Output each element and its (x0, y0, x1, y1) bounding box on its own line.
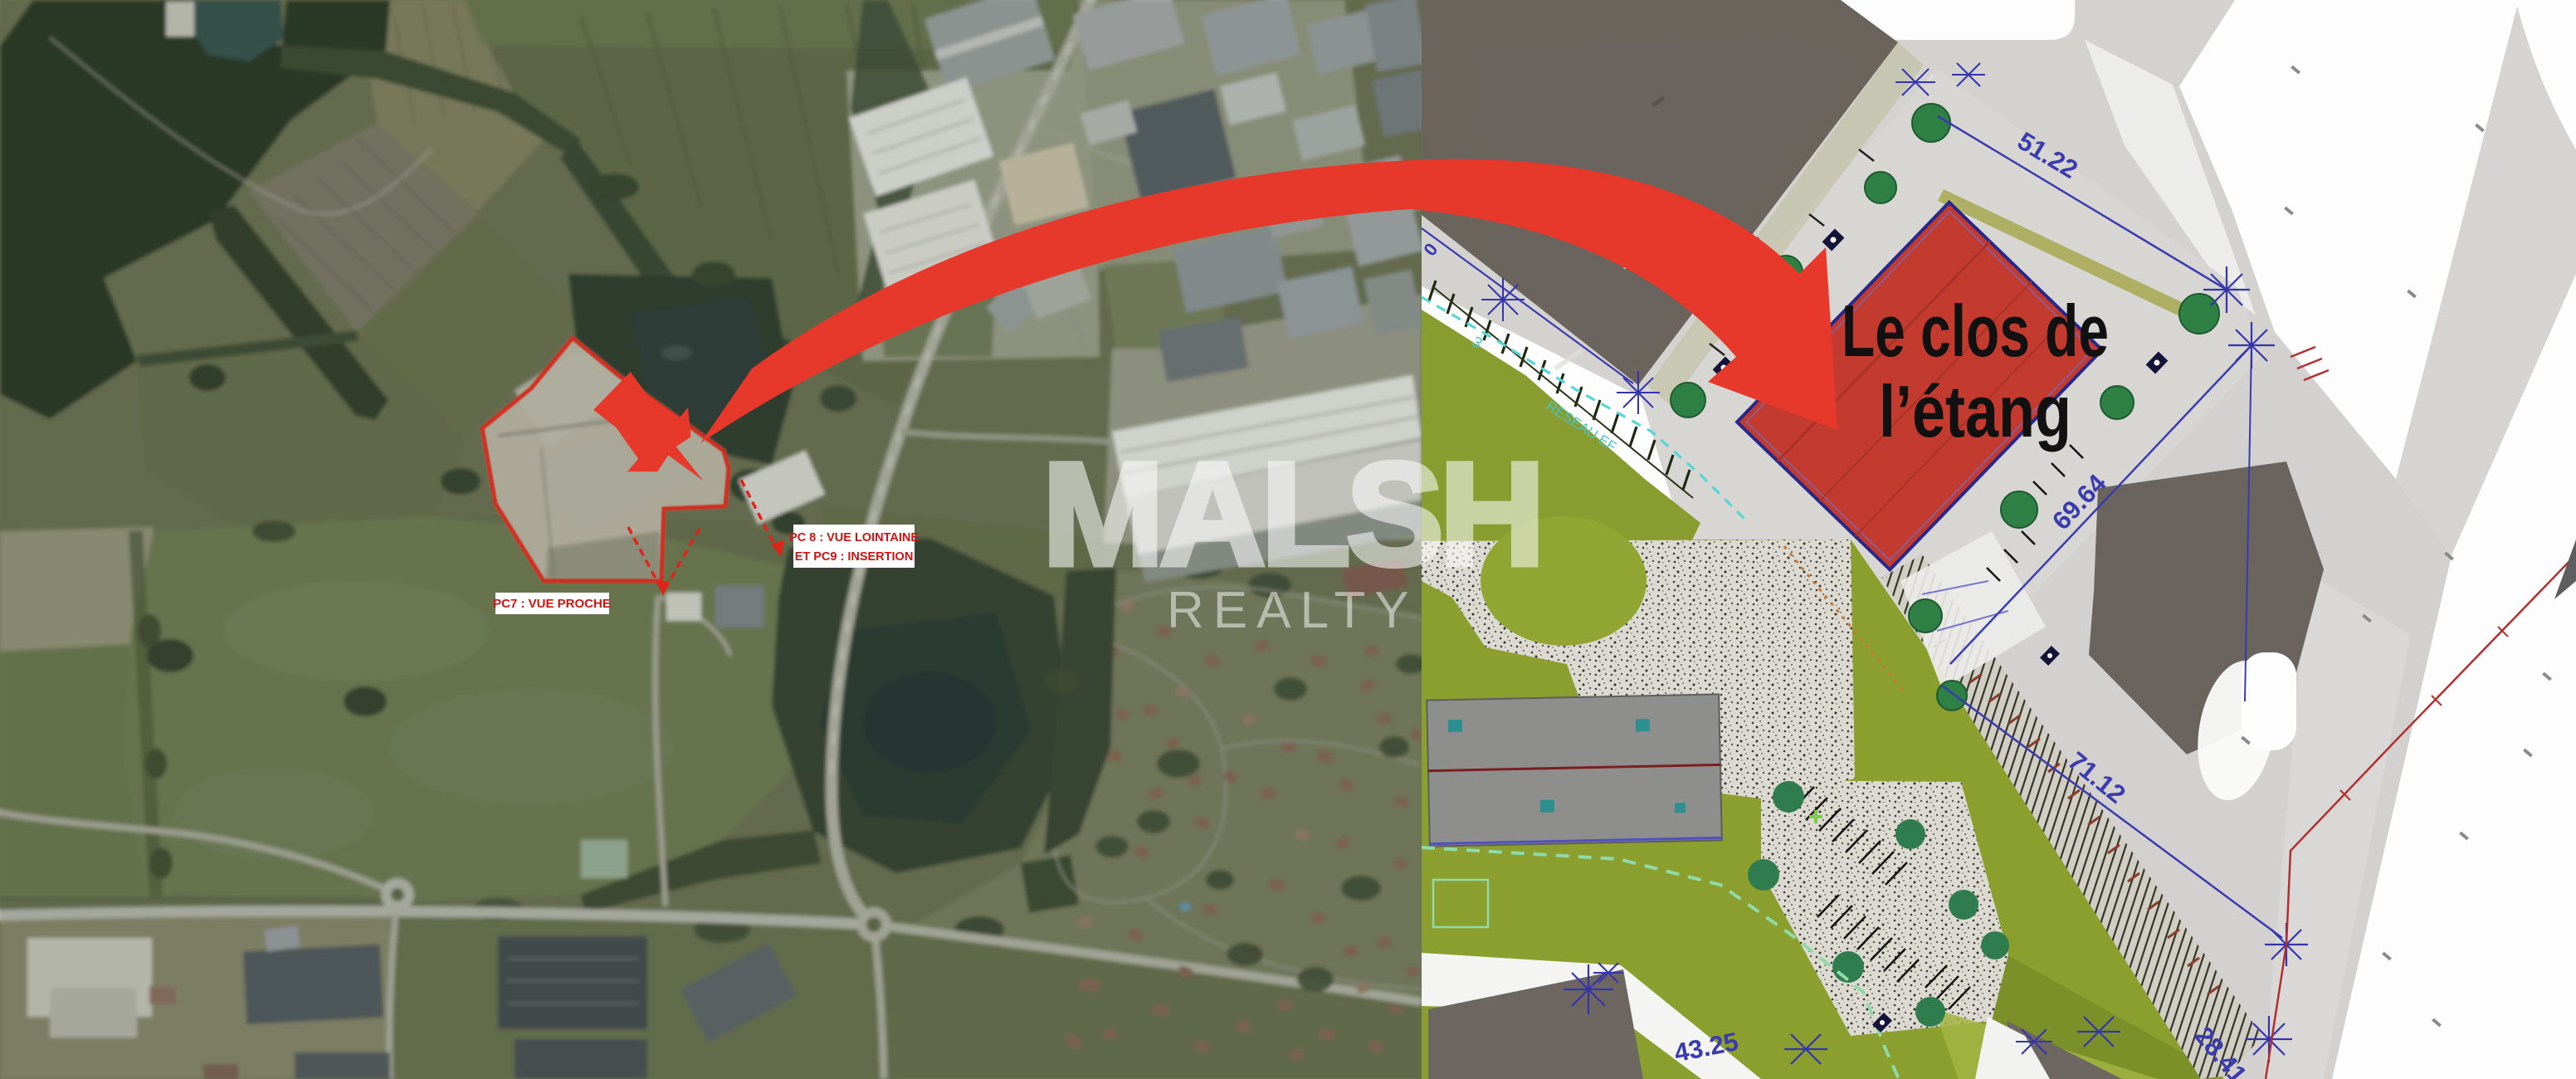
svg-text:MALSH: MALSH (1042, 433, 1541, 596)
svg-text:ET PC9 : INSERTION: ET PC9 : INSERTION (795, 550, 914, 564)
svg-text:PC7 : VUE PROCHE: PC7 : VUE PROCHE (493, 597, 611, 611)
svg-text:Le clos de: Le clos de (1842, 290, 2109, 372)
svg-text:l’étang: l’étang (1879, 370, 2071, 452)
svg-text:PC 8 : VUE LOINTAINE: PC 8 : VUE LOINTAINE (789, 531, 919, 544)
svg-text:REALTY: REALTY (1167, 582, 1418, 639)
